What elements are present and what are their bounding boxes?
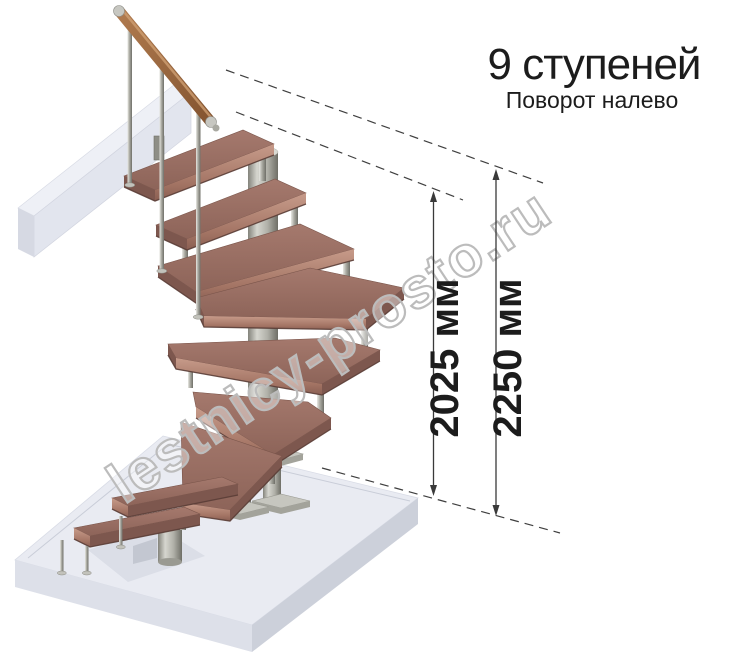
handrail-tip — [213, 125, 220, 132]
leg-rod — [60, 540, 64, 572]
baluster-rod — [128, 24, 133, 185]
baluster-rod — [160, 62, 165, 271]
arrow-down-icon — [430, 485, 437, 496]
leg-rod — [85, 546, 89, 572]
arrow-up-icon — [493, 169, 500, 180]
baluster-rod — [196, 106, 201, 317]
arrow-down-icon — [493, 505, 500, 516]
staircase-3d-render: lestnicy-prosto.ru 2025 мм 2250 мм 9 сту… — [0, 0, 744, 655]
arrow-up-icon — [430, 191, 437, 202]
title-steps-count: 9 ступеней — [488, 40, 701, 89]
handrail-end-cap — [114, 6, 125, 17]
dimension-label-total-height: 2250 мм — [486, 278, 530, 437]
dimension-label-stair-height: 2025 мм — [423, 278, 467, 437]
staircase-diagram: lestnicy-prosto.ru 2025 мм 2250 мм 9 сту… — [0, 0, 744, 655]
title-turn-direction: Поворот налево — [506, 87, 679, 113]
leg-rod — [119, 516, 123, 546]
